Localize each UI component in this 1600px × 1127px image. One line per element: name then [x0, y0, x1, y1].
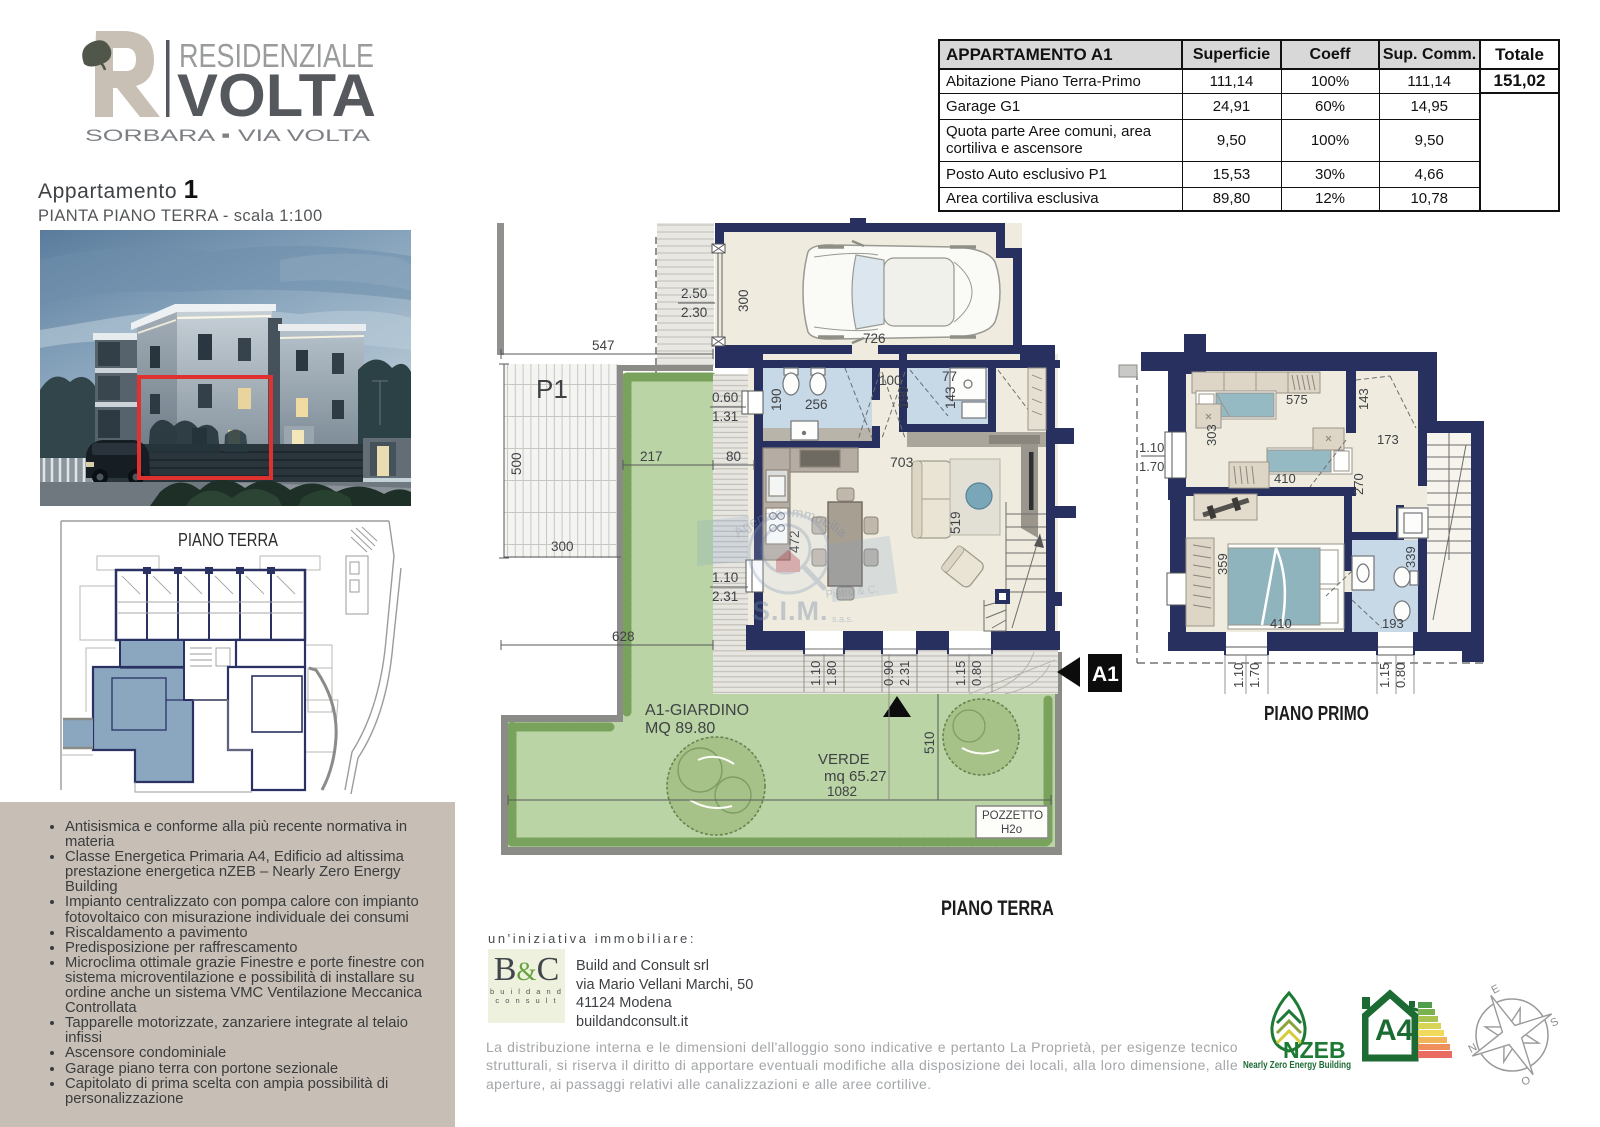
svg-text:PIANO TERRA: PIANO TERRA	[178, 530, 278, 550]
svg-text:1.70: 1.70	[1139, 459, 1164, 474]
svg-text:0.60: 0.60	[712, 390, 738, 405]
svg-text:VOLTA: VOLTA	[177, 62, 376, 129]
svg-text:1.70: 1.70	[1247, 663, 1262, 688]
svg-text:0.80: 0.80	[969, 661, 984, 686]
svg-text:1.10: 1.10	[1231, 663, 1246, 688]
svg-text:80: 80	[726, 449, 741, 464]
svg-text:510: 510	[922, 731, 937, 754]
svg-text:MQ 89.80: MQ 89.80	[645, 720, 715, 737]
svg-text:359: 359	[1215, 553, 1230, 575]
svg-text:339: 339	[1403, 546, 1418, 568]
svg-text:270: 270	[1351, 473, 1366, 495]
svg-text:A4: A4	[1375, 1014, 1414, 1047]
svg-text:mq 65.27: mq 65.27	[824, 768, 887, 785]
svg-text:143: 143	[1356, 388, 1371, 410]
svg-text:S.I.M.: S.I.M.	[752, 596, 829, 626]
svg-text:190: 190	[769, 388, 784, 411]
svg-text:P1: P1	[536, 374, 568, 404]
svg-text:726: 726	[863, 331, 886, 346]
svg-text:410: 410	[1274, 471, 1296, 486]
svg-text:143: 143	[943, 386, 958, 409]
svg-text:173: 173	[1377, 432, 1399, 447]
svg-text:1.10: 1.10	[808, 661, 823, 686]
svg-text:0.90: 0.90	[881, 661, 896, 686]
svg-text:575: 575	[1286, 392, 1308, 407]
svg-text:100: 100	[879, 373, 902, 388]
svg-text:VERDE: VERDE	[818, 751, 870, 768]
svg-text:O: O	[1520, 1074, 1534, 1087]
svg-text:1.80: 1.80	[824, 661, 839, 686]
svg-text:500: 500	[509, 452, 524, 475]
svg-text:703: 703	[890, 454, 914, 470]
svg-text:410: 410	[1270, 616, 1292, 631]
svg-text:s.a.s.: s.a.s.	[832, 614, 854, 624]
svg-text:2.31: 2.31	[897, 661, 912, 686]
svg-text:0.80: 0.80	[1393, 663, 1408, 688]
svg-text:A1-GIARDINO: A1-GIARDINO	[645, 702, 749, 719]
svg-text:Nearly Zero Energy Building: Nearly Zero Energy Building	[1243, 1060, 1351, 1070]
svg-text:2.50: 2.50	[681, 286, 707, 301]
svg-text:256: 256	[805, 397, 828, 412]
svg-text:SORBARA ▪ VIA VOLTA: SORBARA ▪ VIA VOLTA	[85, 126, 371, 145]
svg-text:300: 300	[551, 539, 574, 554]
svg-text:1082: 1082	[827, 784, 857, 799]
svg-text:1.10: 1.10	[712, 570, 738, 585]
svg-text:300: 300	[736, 289, 751, 312]
svg-text:190: 190	[896, 386, 911, 409]
svg-text:77: 77	[942, 369, 957, 384]
svg-text:1.31: 1.31	[712, 409, 738, 424]
svg-text:S: S	[1549, 1016, 1561, 1030]
svg-text:519: 519	[948, 511, 963, 534]
svg-text:2.31: 2.31	[712, 589, 738, 604]
svg-text:217: 217	[640, 449, 663, 464]
svg-text:H2o: H2o	[1001, 824, 1022, 836]
svg-text:POZZETTO: POZZETTO	[982, 810, 1043, 822]
svg-text:193: 193	[1382, 616, 1404, 631]
svg-text:1.10: 1.10	[1139, 440, 1164, 455]
svg-text:1.15: 1.15	[953, 661, 968, 686]
svg-text:1.15: 1.15	[1377, 663, 1392, 688]
svg-text:303: 303	[1204, 424, 1219, 446]
svg-text:E: E	[1490, 983, 1502, 997]
svg-text:628: 628	[612, 629, 635, 644]
svg-text:547: 547	[592, 338, 615, 353]
svg-text:2.30: 2.30	[681, 305, 707, 320]
